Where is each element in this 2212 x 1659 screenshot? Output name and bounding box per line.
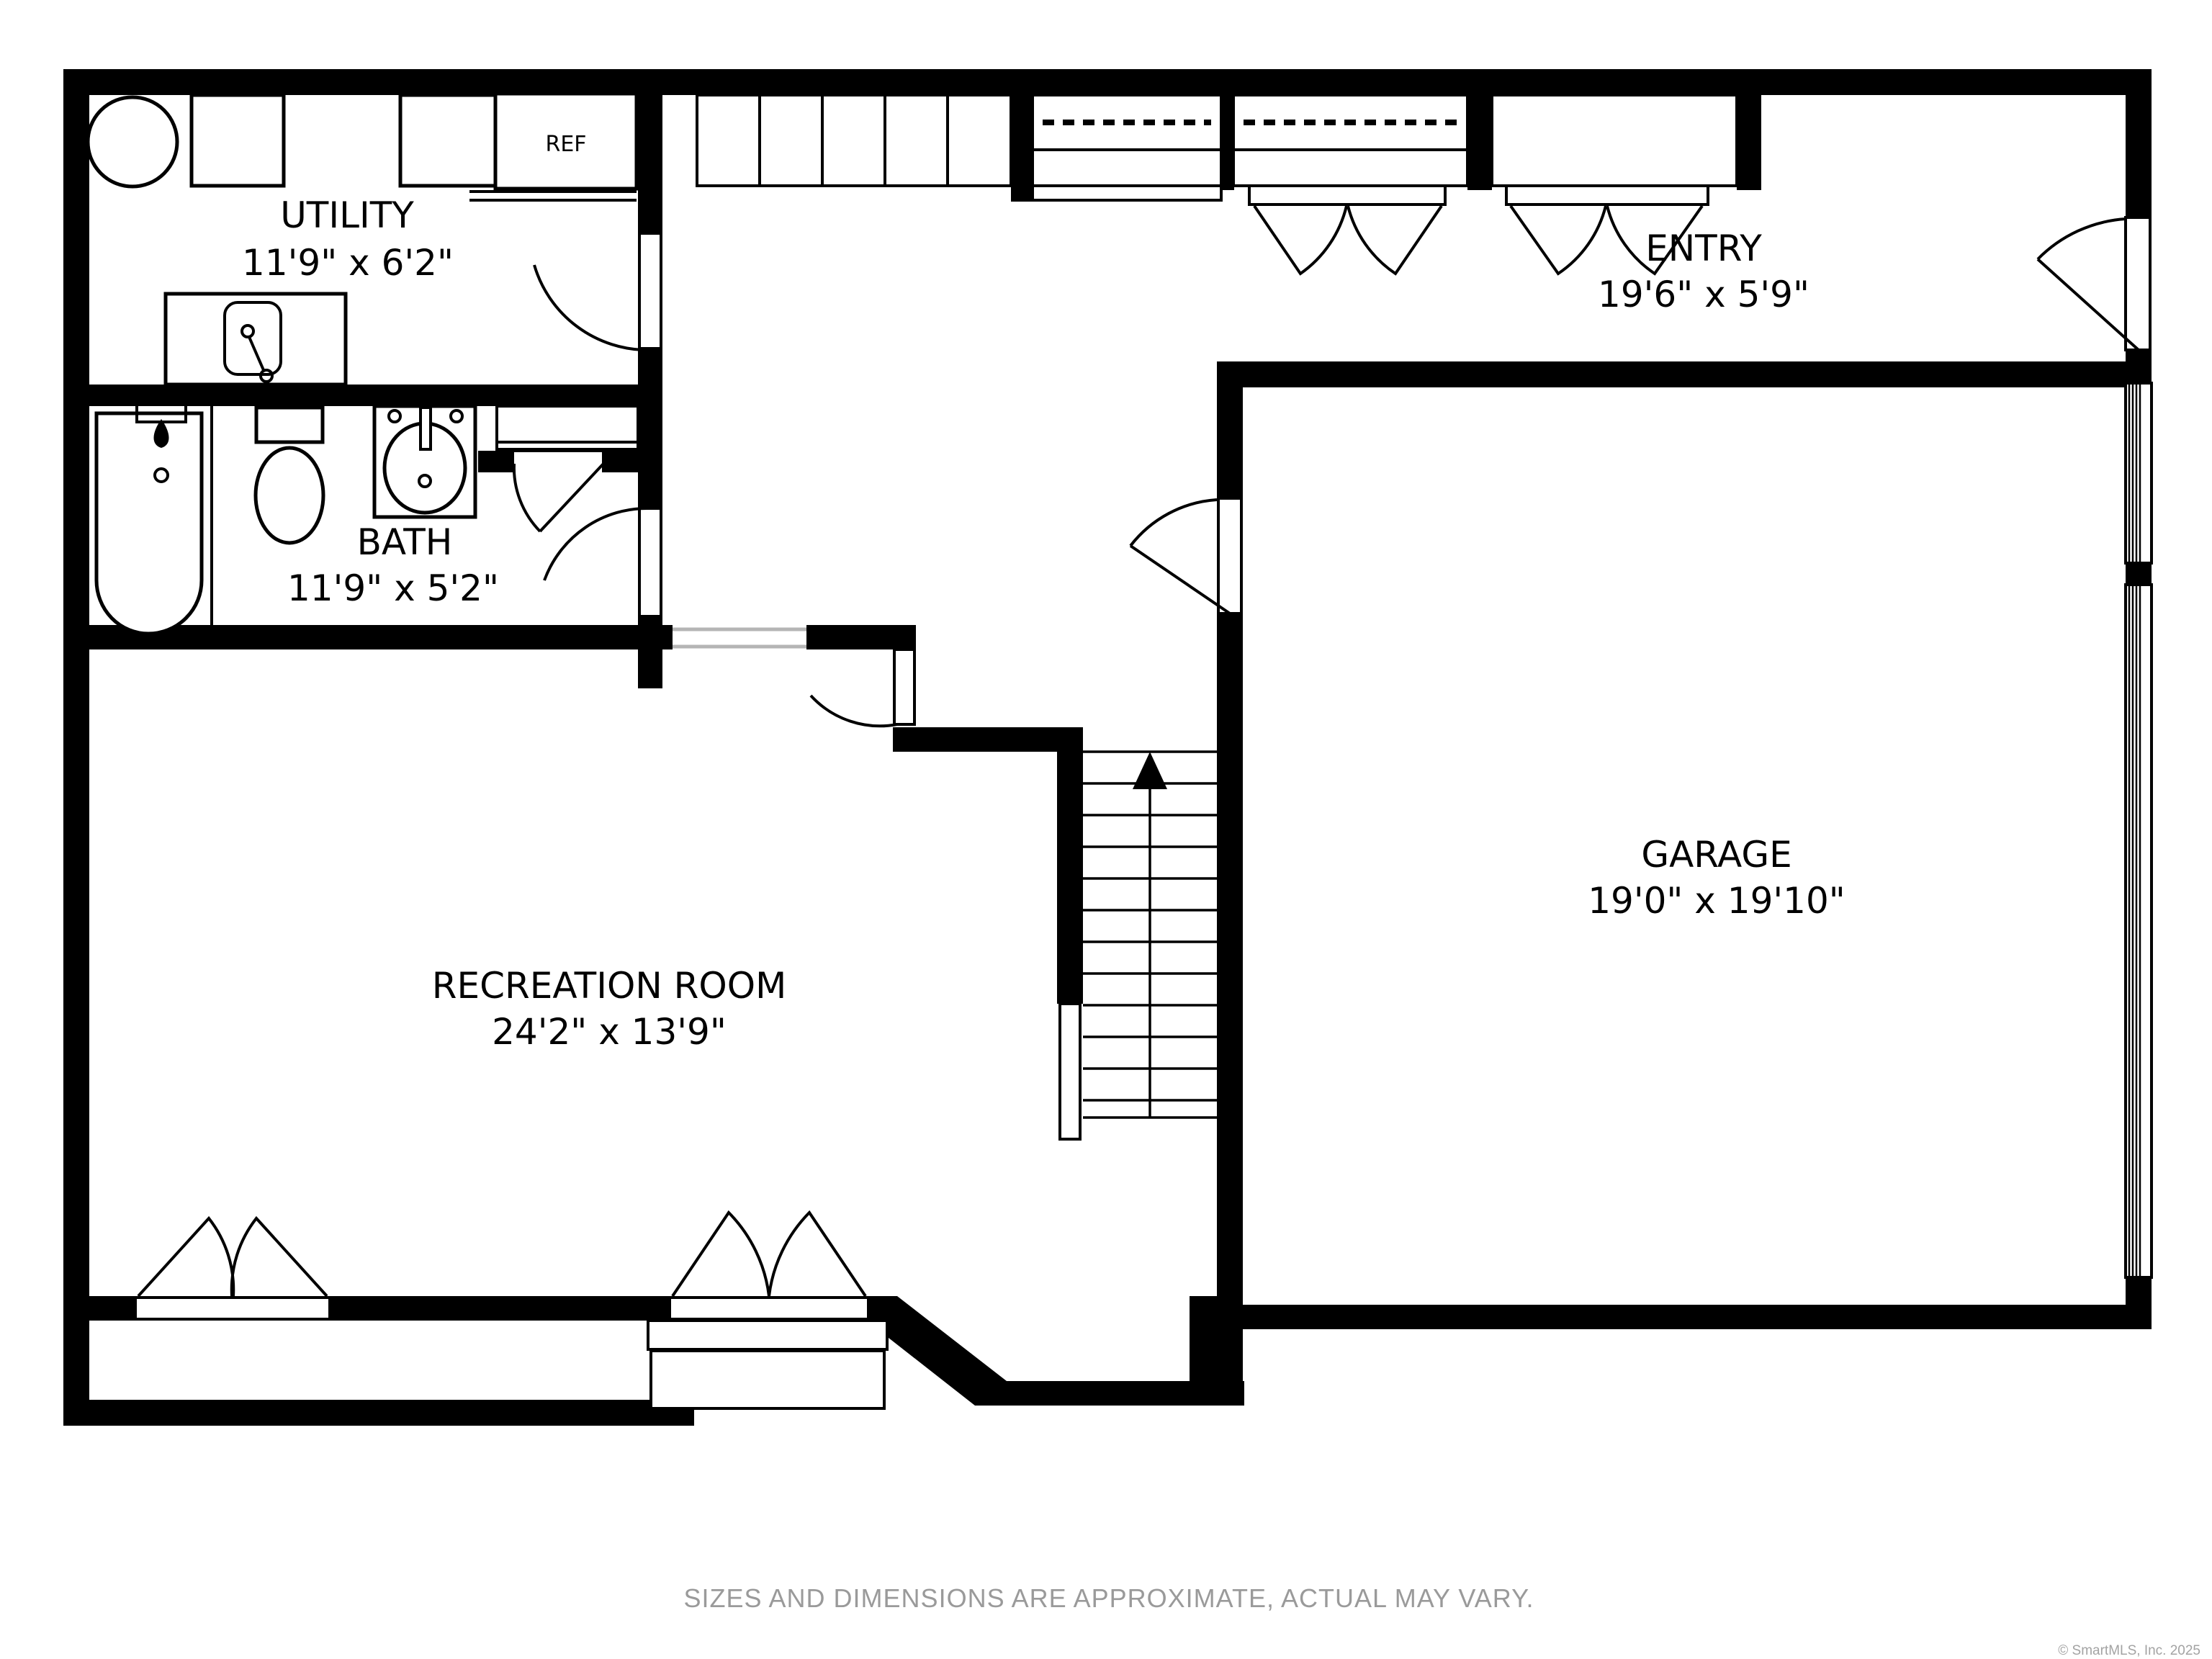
room-label-recreation: RECREATION ROOM [432,965,786,1007]
rec-bifold-door [138,1218,327,1296]
wall-rec-bottom-c [868,1296,897,1321]
wall-closet-2-right [1737,95,1761,190]
laundry-sink [225,302,281,374]
cabinet-4 [885,95,948,186]
dims-label-recreation: 24'2" x 13'9" [492,1011,727,1053]
washer-icon [88,97,177,186]
hall-door-leaf [639,508,661,616]
wall-bath-closet-stub-right [602,451,638,472]
toilet-tank [256,408,323,442]
stair-up-arrow [1133,752,1167,789]
stairs [1060,752,1217,1139]
dims-label-garage: 19'0" x 19'10" [1588,880,1845,922]
room-label-bath: BATH [357,521,453,563]
wall-entry-bottom [1217,361,2126,387]
bath-door-arc [514,464,540,531]
dims-label-entry: 19'6" x 5'9" [1598,274,1809,315]
bath-closet [497,406,638,451]
wall-garage-left-lower [1217,613,1243,1406]
cabinet-5 [948,95,1011,186]
rec-bifold-sill [135,1298,330,1319]
front-door-open-leaf [2038,259,2139,350]
closet-1 [1233,95,1467,186]
door-step-upper [648,1321,887,1349]
garage-overhead-doors [2126,383,2152,1277]
utility-door-arc [534,265,648,350]
closet-a-sill [1033,186,1221,200]
room-label-entry: ENTRY [1645,228,1762,269]
garage-door-leaf [1218,498,1241,613]
toilet-bowl [256,448,323,543]
wall-stairs-left [1057,752,1083,1004]
sink-faucet-stem [421,408,431,449]
entry-area [697,95,2150,350]
garage-door-open-leaf [1130,546,1230,613]
closet-1-sill [1249,186,1445,204]
cabinet-1 [697,95,760,186]
wall-rec-bottom-a [63,1296,135,1321]
door-step-lower [651,1351,884,1408]
wall-center-bottom [1005,1381,1244,1406]
wall-rec-bottom-b [330,1296,670,1321]
bath-closet-shelf [497,442,638,449]
wall-right-entry [2126,69,2152,217]
wall-utility-right-upper [638,95,662,233]
cabinet-3 [822,95,885,186]
cased-opening [673,629,806,647]
dims-label-bath: 11'9" x 5'2" [287,567,499,609]
wall-closet-1-2-sep [1467,95,1492,190]
wall-utility-right-lower [638,350,662,406]
wall-top [63,69,2152,95]
closet-1-bifold-door [1254,206,1442,274]
rec-door-arc [811,696,897,726]
room-label-garage: GARAGE [1641,834,1791,876]
hall-area [673,498,1241,726]
stair-railing [1060,1004,1080,1139]
wall-patio-bottom [63,1400,694,1426]
rec-double-door [673,1213,866,1296]
refrigerator-label: REF [545,132,586,157]
floor-plan: UTILITY 11'9" x 6'2" BATH 11'9" x 5'2" E… [0,0,2212,1659]
wall-hall-rec-piece [806,625,916,649]
rec-door-leaf [894,649,914,724]
wall-garage-left-upper [1217,361,1243,498]
wall-right-below-door [2126,350,2152,383]
wall-landing [893,727,1083,752]
front-door-arc [2038,219,2126,259]
garage-door-arc [1130,500,1217,546]
wall-bath-closet-stub-left [478,451,514,472]
closet-a-block [1011,183,1034,202]
cabinet-icon [400,95,495,186]
utility-door-leaf [639,233,661,349]
wall-bath-right-upper [638,406,662,508]
footer-note: SIZES AND DIMENSIONS ARE APPROXIMATE, AC… [684,1583,1534,1613]
room-label-utility: UTILITY [280,194,414,236]
wall-utility-bath-sep [63,385,662,406]
wall-right-mid-pillar [2126,563,2152,585]
dims-label-utility: 11'9" x 6'2" [242,242,454,284]
cabinet-2 [760,95,822,186]
bathtub-icon [96,413,202,634]
rec-double-door-sill [670,1298,868,1319]
counter-edge [469,192,637,200]
closet-2 [1492,95,1737,186]
front-door-leaf [2126,217,2150,350]
hall-door-arc [544,508,649,580]
dryer-icon [192,95,284,186]
copyright: © SmartMLS, Inc. 2025 [2058,1643,2200,1658]
closet-a [1033,95,1221,186]
closet-2-sill [1506,186,1708,204]
wall-left [63,69,89,1426]
wall-garage-bottom [1243,1305,2152,1329]
